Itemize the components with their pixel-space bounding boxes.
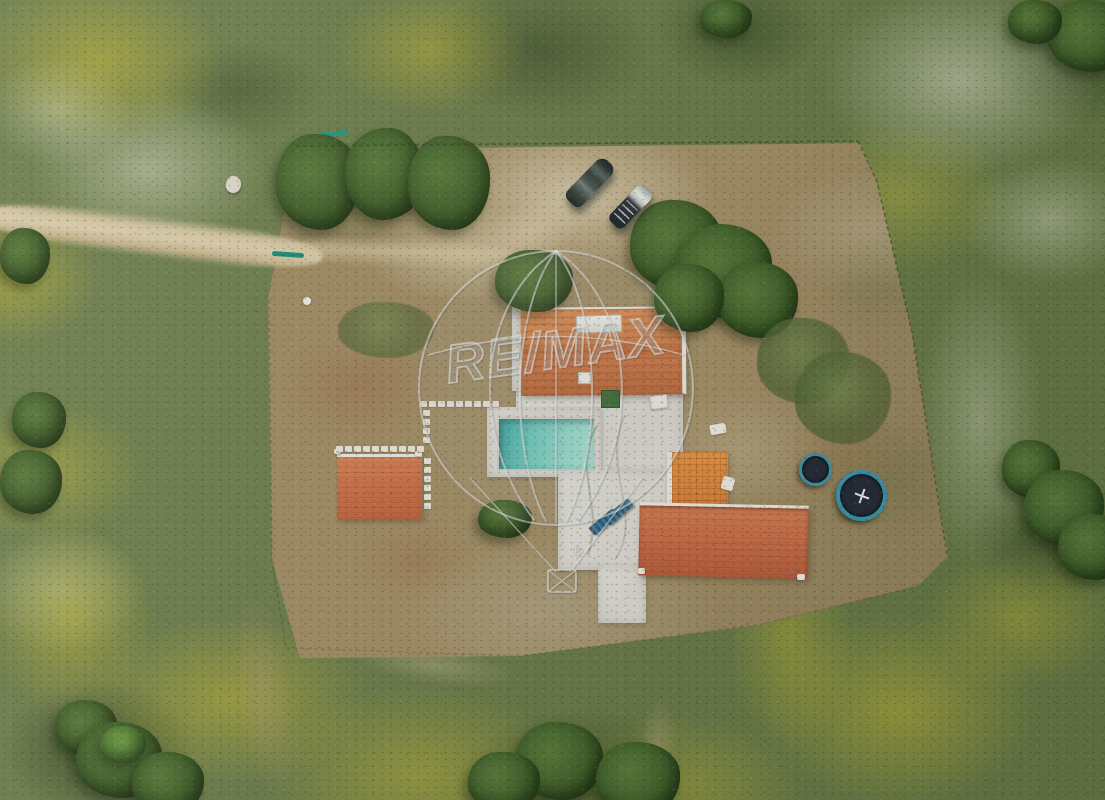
tree	[12, 392, 66, 448]
bright-bush	[100, 726, 146, 764]
stepping-stone-paver	[424, 494, 431, 500]
stepping-stone-paver	[390, 446, 397, 452]
stepping-stone-paver	[420, 401, 427, 407]
stepping-stone-paver	[336, 446, 343, 452]
stepping-stone-paver	[483, 401, 490, 407]
stepping-stone-paver	[424, 485, 431, 491]
stepping-stone-paver	[408, 446, 415, 452]
patio-white-box	[649, 394, 669, 410]
stepping-stone-paver	[465, 401, 472, 407]
olive-tree	[795, 352, 891, 444]
tree	[1008, 0, 1062, 44]
aerial-photo: RE/MAX ®	[0, 0, 1105, 800]
stepping-stone-paver	[447, 401, 454, 407]
shrub	[132, 752, 204, 800]
south-wing-roof	[638, 502, 808, 579]
wing-corner-stone	[797, 574, 805, 580]
stepping-stone-paver	[424, 503, 431, 509]
skylight	[576, 314, 623, 334]
olive-tree	[338, 302, 434, 358]
white-debris	[303, 297, 311, 305]
stepping-stone-paver	[372, 446, 379, 452]
tree-over-roof	[495, 250, 573, 312]
stepping-stone-paver	[381, 446, 388, 452]
stepping-stone-paver	[492, 401, 499, 407]
outbuilding-roof	[337, 454, 422, 519]
tree-cluster	[654, 264, 724, 332]
trampoline-small	[799, 453, 832, 486]
stepping-stone-paver	[424, 467, 431, 473]
stepping-stone-paver	[423, 437, 430, 443]
dirt-road	[0, 194, 325, 278]
chimney	[578, 372, 591, 384]
tree	[0, 228, 50, 284]
stepping-stone-paver	[429, 401, 436, 407]
wing-corner-stone	[638, 568, 645, 574]
swimming-pool	[497, 417, 596, 471]
stepping-stone-paver	[424, 476, 431, 482]
tree	[700, 0, 752, 38]
stepping-stone-paver	[354, 446, 361, 452]
trampoline-large	[836, 470, 887, 521]
stepping-stone-paver	[363, 446, 370, 452]
stepping-stone-paver	[423, 419, 430, 425]
stepping-stone-paver	[438, 401, 445, 407]
stepping-stone-paver	[423, 428, 430, 434]
tree	[0, 450, 62, 514]
green-mat	[601, 390, 620, 408]
east-annex-roof	[667, 452, 728, 504]
bush	[478, 500, 532, 538]
tree	[408, 136, 490, 230]
stepping-stone-paver	[424, 458, 431, 464]
stepping-stone-paver	[423, 410, 430, 416]
white-rock	[224, 174, 244, 195]
tree	[468, 752, 540, 800]
tree	[596, 742, 680, 800]
stepping-stone-paver	[417, 446, 424, 452]
stepping-stone-paver	[345, 446, 352, 452]
stepping-stone-paver	[456, 401, 463, 407]
tree	[1058, 514, 1105, 580]
stepping-stone-paver	[399, 446, 406, 452]
stepping-stone-paver	[474, 401, 481, 407]
